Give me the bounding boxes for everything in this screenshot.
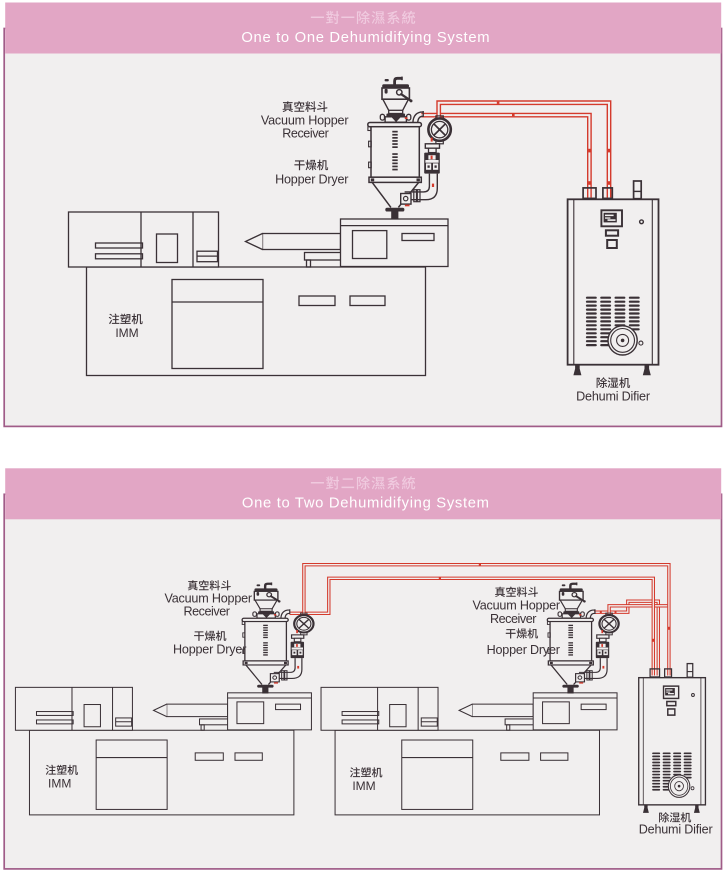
- svg-text:Receiver: Receiver: [490, 612, 536, 626]
- svg-text:Receiver: Receiver: [282, 126, 328, 140]
- svg-text:Vacuum Hopper: Vacuum Hopper: [472, 599, 559, 613]
- svg-text:One to Two Dehumidifying Syste: One to Two Dehumidifying System: [242, 495, 490, 511]
- svg-text:Dehumi Difier: Dehumi Difier: [639, 823, 713, 837]
- svg-text:Hopper Dryer: Hopper Dryer: [173, 643, 246, 657]
- svg-text:Hopper Dryer: Hopper Dryer: [275, 173, 348, 187]
- svg-text:Dehumi Difier: Dehumi Difier: [576, 390, 650, 404]
- svg-text:IMM: IMM: [115, 326, 138, 340]
- svg-text:One to One Dehumidifying Syste: One to One Dehumidifying System: [241, 30, 490, 46]
- svg-text:IMM: IMM: [48, 776, 71, 790]
- svg-text:Hopper Dryer: Hopper Dryer: [487, 643, 560, 657]
- svg-text:IMM: IMM: [352, 779, 375, 793]
- svg-text:Receiver: Receiver: [183, 604, 229, 618]
